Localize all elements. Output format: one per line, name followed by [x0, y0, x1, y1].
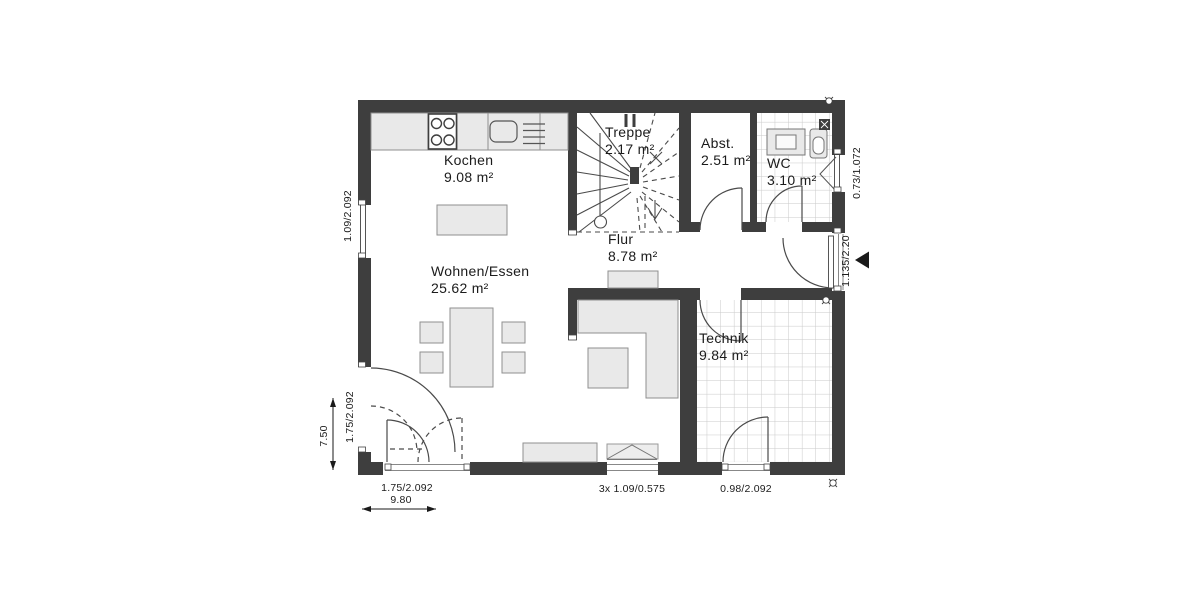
sideboard-living — [523, 443, 597, 462]
room-name: Technik — [699, 330, 749, 347]
wall-technik-left — [680, 300, 697, 462]
room-label-wohnen-essen: Wohnen/Essen 25.62 m² — [431, 263, 529, 297]
dim-label-bottom-left-door: 1.75/2.092 — [381, 482, 433, 494]
dim-label-wc-window: 0.73/1.072 — [851, 147, 863, 199]
window-left — [361, 205, 366, 258]
window-wc — [835, 155, 840, 192]
room-area: 2.17 m² — [605, 141, 655, 158]
wall-stub — [568, 300, 577, 340]
room-name: Flur — [608, 231, 658, 248]
room-name: Kochen — [444, 152, 494, 169]
dim-line-horizontal-980 — [362, 506, 436, 512]
room-area: 9.84 m² — [699, 347, 749, 364]
room-area: 9.08 m² — [444, 169, 494, 186]
window-bottom-trio — [607, 444, 658, 471]
room-label-flur: Flur 8.78 m² — [608, 231, 658, 265]
wall-abst-wc — [750, 113, 757, 232]
room-name: Treppe — [605, 124, 655, 141]
wall-bottom-3 — [770, 462, 845, 475]
dim-label-overall-width: 9.80 — [390, 494, 411, 506]
dim-label-entrance-door: 1.135/2.20 — [840, 235, 852, 287]
wall-top — [358, 100, 845, 113]
wall-bottom-2 — [658, 462, 722, 475]
room-label-abst: Abst. 2.51 m² — [701, 135, 751, 169]
wall-abst-bottom-right — [742, 222, 757, 232]
chair — [420, 352, 443, 373]
wall-abst-bottom-left — [679, 222, 700, 232]
wall-left-upper — [358, 113, 371, 205]
wall-stairs-abst — [679, 113, 691, 232]
room-name: WC — [767, 155, 817, 172]
room-label-technik: Technik 9.84 m² — [699, 330, 749, 364]
chair — [502, 322, 525, 343]
dim-label-bottom-window: 3x 1.09/0.575 — [599, 483, 665, 495]
entrance-marker-triangle — [855, 252, 869, 269]
room-area: 8.78 m² — [608, 248, 658, 265]
dim-line-vertical-750 — [330, 398, 336, 470]
survey-point-icon — [822, 296, 830, 304]
wall-corner-step — [358, 452, 383, 475]
survey-point-icon — [829, 479, 837, 487]
room-label-wc: WC 3.10 m² — [767, 155, 817, 189]
washbasin-icon — [767, 129, 805, 155]
room-name: Abst. — [701, 135, 751, 152]
chair — [502, 352, 525, 373]
sideboard-flur — [608, 271, 658, 288]
wall-wc-bottom-right — [802, 222, 832, 232]
kitchen-counter — [371, 113, 568, 150]
room-label-kochen: Kochen 9.08 m² — [444, 152, 494, 186]
survey-point-icon — [825, 97, 833, 105]
dim-label-left-door: 1.75/2.092 — [344, 391, 356, 443]
dining-table — [450, 308, 493, 387]
room-label-treppe: Treppe 2.17 m² — [605, 124, 655, 158]
wall-kitchen-stairs — [568, 113, 577, 235]
wall-right-2 — [832, 192, 845, 233]
wall-bottom-1 — [470, 462, 607, 475]
door-abst — [700, 188, 742, 230]
floor-plan-canvas: Kochen 9.08 m² Treppe 2.17 m² Abst. 2.51… — [0, 0, 1200, 600]
vent-icon — [819, 119, 830, 130]
room-name: Wohnen/Essen — [431, 263, 529, 280]
technik-tiled-floor — [697, 300, 832, 462]
wall-right-3 — [832, 291, 845, 475]
floor-plan-drawing — [0, 0, 1200, 600]
chair — [420, 322, 443, 343]
room-area: 25.62 m² — [431, 280, 529, 297]
stove-icon — [429, 114, 457, 149]
room-area: 2.51 m² — [701, 152, 751, 169]
toilet-icon — [810, 129, 827, 158]
wall-flur-south-right — [741, 288, 832, 300]
dining-set — [420, 308, 525, 387]
dim-label-overall-depth: 7.50 — [318, 425, 330, 446]
door-left-terrace — [371, 368, 455, 452]
kitchen-island — [437, 205, 507, 235]
coffee-table — [588, 348, 628, 388]
dim-label-technik-door: 0.98/2.092 — [720, 483, 772, 495]
room-area: 3.10 m² — [767, 172, 817, 189]
wall-wc-bottom-left — [757, 222, 766, 232]
dim-label-left-window: 1.09/2.092 — [342, 190, 354, 242]
wall-left-mid — [358, 258, 371, 367]
door-entrance — [783, 236, 834, 288]
wall-flur-south-left — [568, 288, 700, 300]
